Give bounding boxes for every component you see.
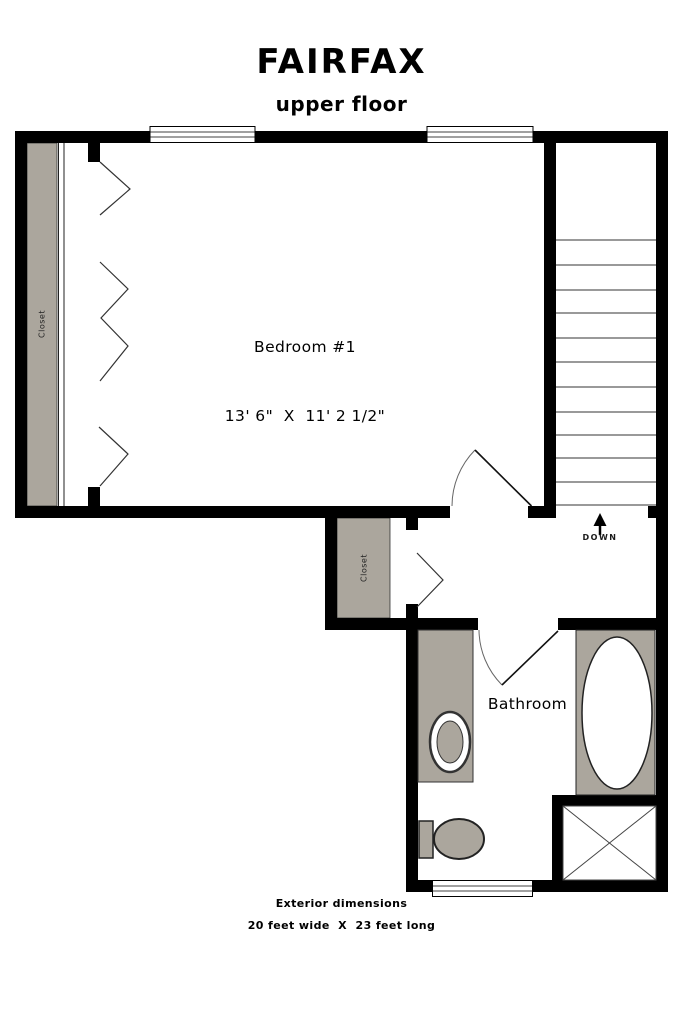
bathroom-fixtures <box>418 630 656 880</box>
bedroom-door-swing <box>452 450 532 506</box>
wall-hall-closet-bottom-jamb <box>406 604 418 618</box>
toilet-tank <box>419 821 433 858</box>
stair-treads <box>556 240 656 505</box>
stairs-down-label: DOWN <box>560 533 640 542</box>
floor-plan-page: FAIRFAX upper floor Bedroom #1 13' 6" X … <box>0 0 683 1024</box>
bathroom-door-swing <box>479 630 558 685</box>
shower <box>563 806 656 880</box>
wall-stair-bottom-stub <box>648 506 656 518</box>
exterior-dimensions-value: 20 feet wide X 23 feet long <box>0 919 683 932</box>
wall-bathroom-left <box>406 618 418 892</box>
toilet <box>419 819 484 859</box>
wall-bedroom-bottom <box>15 506 450 518</box>
walls <box>15 131 668 892</box>
toilet-bowl <box>434 819 484 859</box>
wall-hall-closet-left <box>325 506 337 630</box>
page-title: FAIRFAX <box>0 42 683 82</box>
wall-bathroom-top-right <box>558 618 668 630</box>
wall-shower-top <box>552 795 668 806</box>
wall-shower-left <box>552 795 563 892</box>
hall-closet-label: Closet <box>360 554 369 582</box>
wall-bedroom-closet-top-jamb <box>88 143 100 162</box>
bifold-door-closet-3 <box>99 427 128 486</box>
window-bathroom-bottom <box>433 881 533 897</box>
wall-top <box>15 131 668 143</box>
page-subtitle: upper floor <box>0 92 683 116</box>
bifold-door-closet-2 <box>100 262 128 381</box>
wall-hall-closet-top-jamb <box>406 506 418 530</box>
bedroom-closet-label: Closet <box>38 310 47 338</box>
bedroom-name: Bedroom #1 <box>180 336 430 359</box>
wall-bedroom-closet-bottom-jamb <box>88 487 100 506</box>
floor-plan-drawing <box>0 0 683 1024</box>
wall-bathroom-top-left <box>418 618 478 630</box>
exterior-dimensions-heading: Exterior dimensions <box>0 897 683 910</box>
bifold-door-hall-closet <box>417 553 443 607</box>
window-top-right <box>427 127 533 143</box>
wall-hall-closet-bottom <box>325 618 418 630</box>
bedroom-label: Bedroom #1 13' 6" X 11' 2 1/2" <box>180 290 430 474</box>
closet-track-lines <box>59 143 65 506</box>
sink-basin <box>437 721 463 763</box>
down-arrow-icon <box>594 513 607 535</box>
bedroom-dimensions: 13' 6" X 11' 2 1/2" <box>180 405 430 428</box>
wall-right <box>656 131 668 892</box>
bathroom-label: Bathroom <box>455 695 600 713</box>
bifold-door-closet-1 <box>100 162 130 215</box>
window-top-left <box>150 127 255 143</box>
wall-stair-left <box>544 143 556 518</box>
bathtub-basin <box>582 637 652 789</box>
wall-left <box>15 131 27 518</box>
